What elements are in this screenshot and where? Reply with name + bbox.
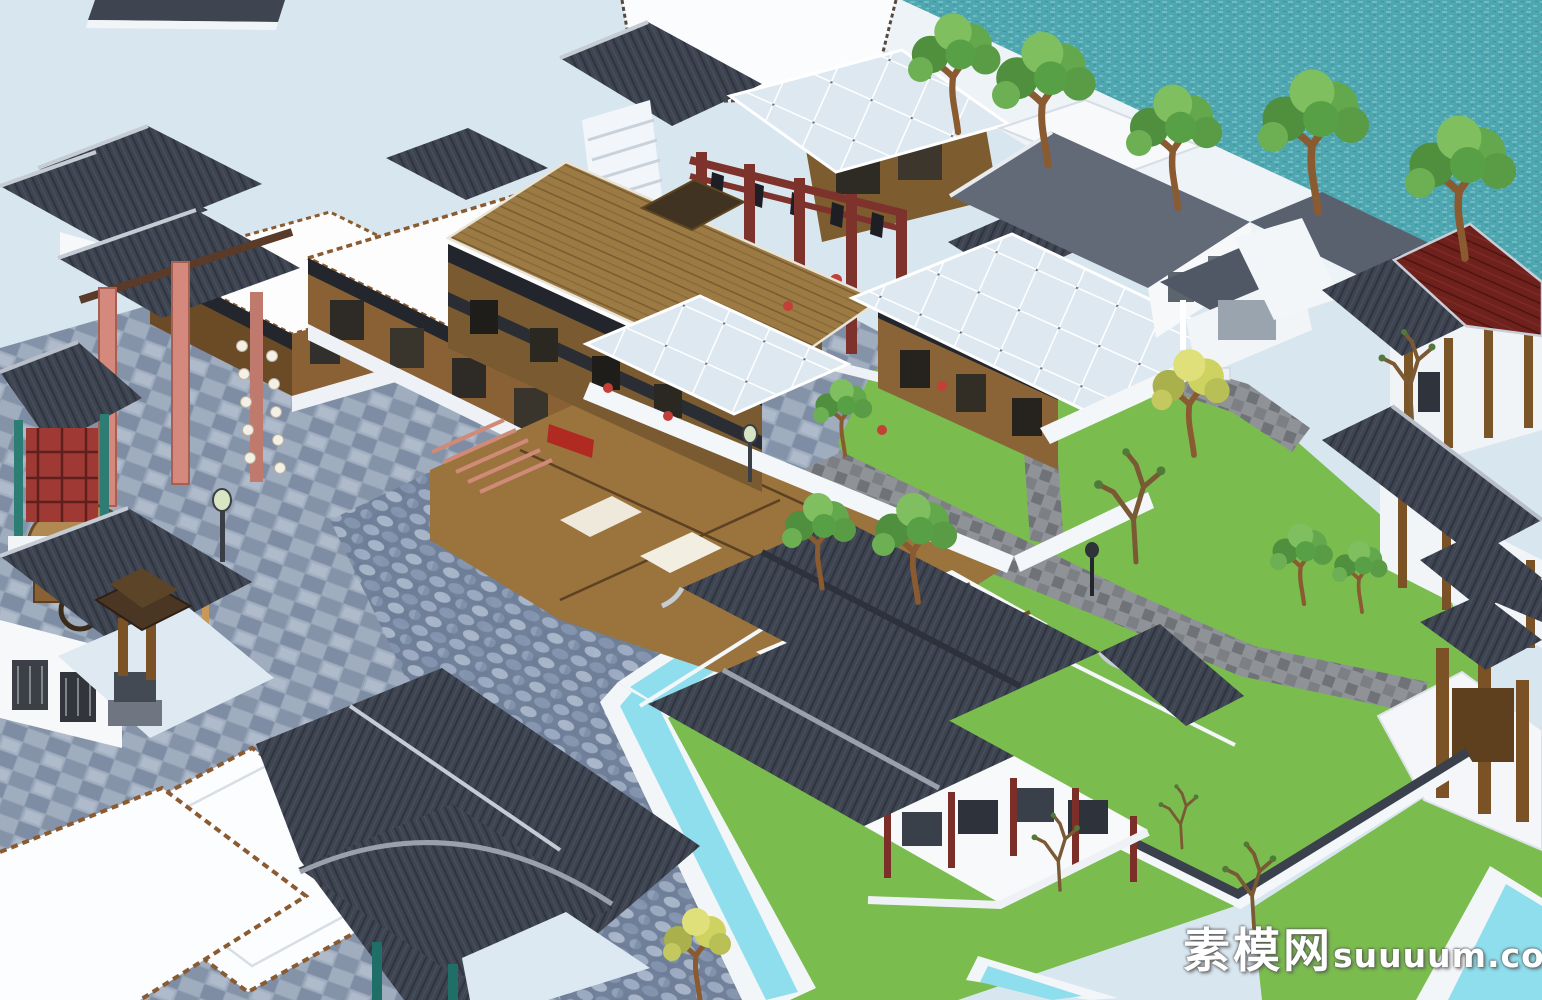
maroon-column (846, 194, 857, 354)
teal-post (14, 420, 23, 540)
teal-post (448, 964, 458, 1000)
lattice-window (1418, 372, 1440, 412)
watermark-domain: suuuum.com (1333, 936, 1542, 975)
pink-pillar (172, 262, 189, 484)
gate-pillar (1516, 680, 1529, 822)
window (530, 328, 558, 362)
porch-post (1180, 300, 1186, 350)
watermark-chinese: 素模网 (1183, 912, 1333, 981)
top-edge-roof (88, 0, 285, 22)
window (1012, 398, 1042, 436)
window (956, 374, 986, 412)
door-lattice (26, 428, 98, 522)
scene-canvas (0, 0, 1542, 1000)
wood-post (146, 622, 156, 680)
wood-post (1398, 496, 1407, 588)
watermark: 素模网suuuum.com (1183, 912, 1542, 981)
window (470, 300, 498, 334)
window (330, 300, 364, 340)
window (900, 350, 930, 388)
window (452, 358, 486, 398)
render-viewport: 素模网suuuum.com (0, 0, 1542, 1000)
wood-post (1444, 338, 1453, 448)
wood-post (118, 618, 128, 676)
stone-base (108, 700, 162, 726)
wood-post (1484, 328, 1493, 438)
window (390, 328, 424, 368)
teal-post (372, 942, 382, 1000)
